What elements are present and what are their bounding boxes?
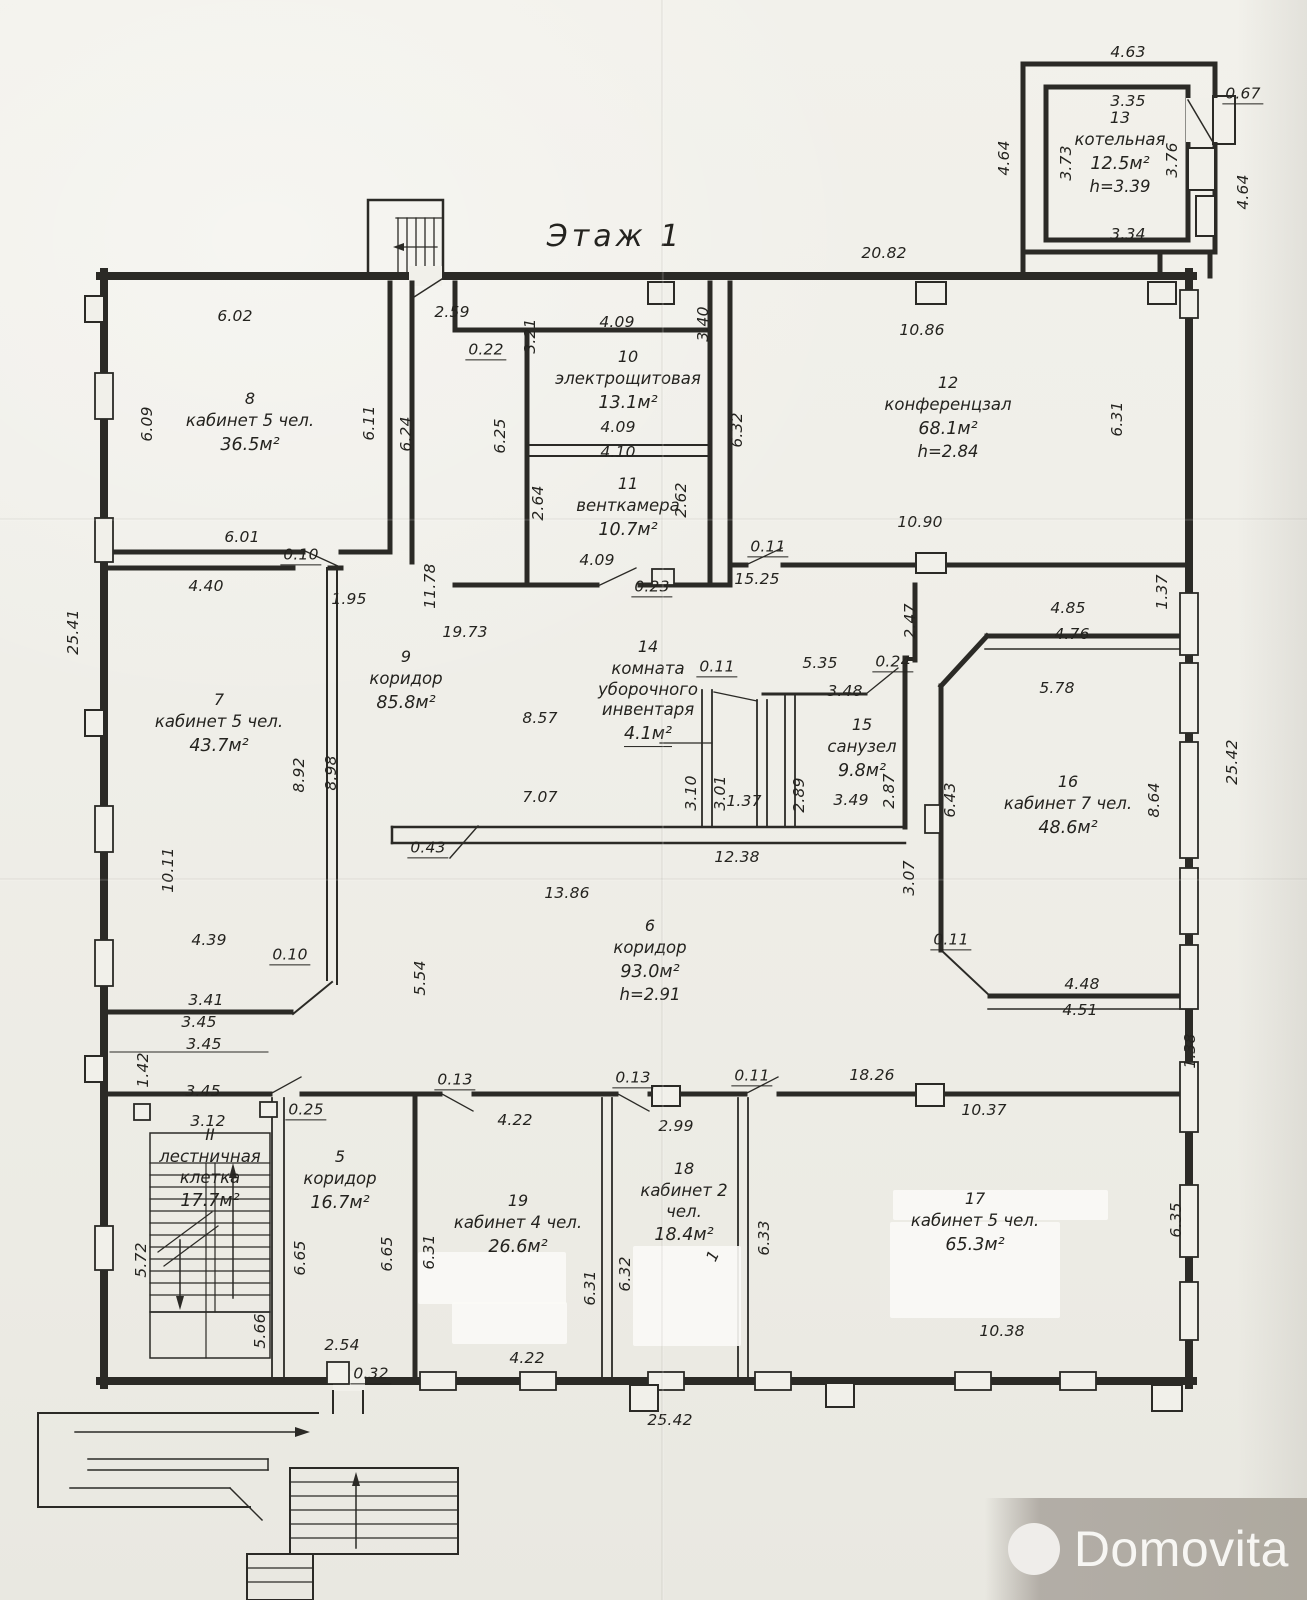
dimension-label: 0.10: [280, 546, 321, 565]
dimension-label: 6.35: [1168, 1202, 1184, 1237]
dimension-label: 2.89: [791, 777, 807, 812]
dimension-label: 13.86: [544, 885, 589, 901]
dimension-label: 4.76: [1054, 626, 1089, 642]
dimension-label: 4.09: [600, 419, 635, 435]
dimension-label: 0.11: [930, 931, 971, 950]
room-name: лестничная клетка: [154, 1147, 266, 1188]
dimension-label: 25.42: [647, 1412, 692, 1428]
room-area: 10.7м²: [598, 520, 657, 540]
dimension-label: 0.13: [434, 1071, 475, 1090]
dimension-label: 4.64: [996, 140, 1012, 175]
dimension-label: 10.90: [897, 514, 942, 530]
room-name: коридор: [613, 938, 686, 959]
dimension-label: 0.25: [285, 1101, 326, 1120]
room-number: 19: [508, 1191, 528, 1210]
dimension-label: 6.25: [492, 418, 508, 453]
dimension-label: 1.42: [135, 1052, 151, 1087]
dimension-label: 2.47: [902, 603, 918, 638]
dimension-label: 5.78: [1039, 680, 1074, 696]
room-number: 18: [674, 1159, 694, 1178]
room-19-label: 19 кабинет 4 чел. 26.6м²: [438, 1191, 598, 1257]
room-18-label: 18 кабинет 2 чел. 18.4м²: [636, 1159, 732, 1245]
dimension-label: 2.54: [324, 1337, 359, 1353]
dimension-label: 8.64: [1146, 782, 1162, 817]
dimension-label: 1.37: [726, 793, 761, 809]
dimension-label: 3.45: [185, 1083, 220, 1099]
left-wall-windows: [85, 296, 113, 1270]
dimension-label: 25.41: [65, 609, 81, 654]
room-name: коридор: [303, 1169, 376, 1190]
brand-dot-icon: [1008, 1523, 1060, 1575]
room-9-label: 9 коридор 85.8м²: [341, 647, 471, 713]
dimension-label: 19.73: [442, 624, 487, 640]
dimension-label: 8.57: [522, 710, 557, 726]
dimension-label: 10.37: [961, 1102, 1006, 1118]
room-name: комната уборочного инвентаря: [590, 659, 706, 721]
room-number: 9: [401, 647, 411, 666]
dimension-label: 3.35: [1110, 93, 1145, 109]
dimension-label: 0.10: [269, 946, 310, 965]
dimension-label: 0.67: [1222, 85, 1263, 104]
dimension-label: 4.51: [1062, 1002, 1097, 1018]
dimension-label: 3.49: [833, 792, 868, 808]
dimension-label: 6.65: [379, 1236, 395, 1271]
room-area: 16.7м²: [310, 1193, 369, 1213]
dimension-label: 8.92: [291, 757, 307, 792]
floor-plan-page: Этаж 1 8 кабинет 5 чел. 36.5м² 7 кабинет…: [0, 0, 1307, 1600]
dimension-label: 8.98: [323, 755, 339, 790]
bottom-wall-windows: [327, 1362, 1182, 1411]
room-6-label: 6 коридор 93.0м² h=2.91: [585, 916, 715, 1004]
room-height: h=2.91: [619, 985, 680, 1004]
room-name: коридор: [369, 669, 442, 690]
dimension-label: 1.37: [1154, 574, 1170, 609]
dimension-label: 3.12: [190, 1113, 225, 1129]
dimension-label: 11.78: [422, 563, 438, 608]
room-17-label: 17 кабинет 5 чел. 65.3м²: [890, 1189, 1060, 1255]
dimension-label: 2.64: [530, 485, 546, 520]
dimension-label: 6.32: [617, 1256, 633, 1291]
room-number: 13: [1110, 108, 1130, 127]
room-name: конференцзал: [884, 395, 1011, 416]
dimension-label: 3.48: [827, 683, 862, 699]
dimension-label: 4.09: [599, 314, 634, 330]
room-name: электрощитовая: [555, 369, 701, 390]
room-name: кабинет 5 чел.: [186, 411, 314, 432]
dimension-label: 6.65: [292, 1240, 308, 1275]
dimension-label: 4.85: [1050, 600, 1085, 616]
dimension-label: 6.33: [756, 1220, 772, 1255]
dimension-label: 3.40: [695, 306, 711, 341]
dimension-label: 7.07: [522, 789, 557, 805]
dimension-label: 6.01: [224, 529, 259, 545]
whiteout-patch: [633, 1246, 741, 1346]
entrance-vestibule: [368, 200, 445, 299]
room-number: 17: [965, 1189, 985, 1208]
dimension-label: 3.45: [181, 1014, 216, 1030]
room-number: 11: [618, 474, 638, 493]
room-area: 43.7м²: [189, 736, 248, 756]
whiteout-patch: [452, 1302, 567, 1344]
room-number: 8: [245, 389, 255, 408]
room-area: 93.0м²: [620, 962, 679, 982]
dimension-label: 6.32: [729, 412, 745, 447]
dimension-label: 2.62: [673, 482, 689, 517]
dimension-label: 6.09: [139, 406, 155, 441]
dimension-label: 0.23: [631, 578, 672, 597]
room-number: 15: [852, 715, 872, 734]
dimension-label: 0.11: [696, 658, 737, 677]
dimension-label: 3.34: [1110, 226, 1145, 242]
room-number: 5: [335, 1147, 345, 1166]
dimension-label: 4.10: [600, 444, 635, 460]
dimension-label: 5.35: [802, 655, 837, 671]
dimension-label: 10.86: [899, 322, 944, 338]
dimension-label: 0.24: [872, 653, 913, 672]
dimension-label: 3.07: [901, 860, 917, 895]
dimension-label: 6.02: [217, 308, 252, 324]
room-height: h=2.84: [917, 442, 978, 461]
dimension-label: 1.38: [1182, 1033, 1198, 1068]
dimension-label: 15.25: [734, 571, 779, 587]
dimension-label: 5.66: [252, 1313, 268, 1348]
room-area: 65.3м²: [945, 1235, 1004, 1255]
dimension-label: 4.22: [509, 1350, 544, 1366]
room-name: венткамера: [576, 496, 680, 517]
dimension-label: 2.87: [881, 773, 897, 808]
dimension-label: 0.22: [465, 341, 506, 360]
dimension-label: 4.09: [579, 552, 614, 568]
dimension-label: 25.42: [1224, 739, 1240, 784]
room-name: кабинет 2 чел.: [636, 1181, 732, 1222]
dimension-label: 4.48: [1064, 976, 1099, 992]
room-15-label: 15 санузел 9.8м²: [802, 715, 922, 781]
dimension-label: 4.40: [188, 578, 223, 594]
corridor-band: [392, 826, 905, 858]
room-name: кабинет 7 чел.: [1004, 794, 1132, 815]
exterior-ramp-stairs: [38, 1391, 458, 1600]
dimension-label: 3.41: [188, 992, 223, 1008]
dimension-label: 6.31: [1109, 401, 1125, 436]
dimension-label: 4.63: [1110, 44, 1145, 60]
room-number: 7: [214, 690, 224, 709]
dimension-label: 3.10: [683, 775, 699, 810]
room-area: 13.1м²: [598, 393, 657, 413]
room-8-label: 8 кабинет 5 чел. 36.5м²: [170, 389, 330, 455]
dimension-label: 4.22: [497, 1112, 532, 1128]
room-name: кабинет 5 чел.: [911, 1211, 1039, 1232]
dimension-label: 6.24: [398, 416, 414, 451]
room-area: 48.6м²: [1038, 818, 1097, 838]
dimension-label: 3.73: [1058, 145, 1074, 180]
dimension-label: 4.39: [191, 932, 226, 948]
room-number: 14: [638, 637, 658, 656]
room-area: 26.6м²: [488, 1237, 547, 1257]
room-14-label: 14 комната уборочного инвентаря 4.1м²: [590, 637, 706, 747]
dimension-label: 1.95: [331, 591, 366, 607]
stairwell-label: II лестничная клетка 17.7м²: [154, 1125, 266, 1211]
room-area: 18.4м²: [654, 1225, 713, 1245]
room-area: 9.8м²: [838, 761, 886, 781]
room-10-label: 10 электрощитовая 13.1м²: [538, 347, 718, 413]
dimension-label: 5.54: [412, 960, 428, 995]
room-number: 12: [938, 373, 958, 392]
room-area: 4.1м²: [624, 724, 672, 747]
dimension-label: 0.11: [731, 1067, 772, 1086]
dimension-label: 2.99: [658, 1118, 693, 1134]
room-name: кабинет 4 чел.: [454, 1213, 582, 1234]
dimension-label: 6.43: [942, 782, 958, 817]
page-title: Этаж 1: [547, 222, 683, 252]
room-area: 36.5м²: [220, 435, 279, 455]
dimension-label: 10.38: [979, 1323, 1024, 1339]
dimension-label: 3.21: [522, 318, 538, 353]
room-name: кабинет 5 чел.: [155, 712, 283, 733]
room-name: санузел: [827, 737, 896, 758]
room-area: 85.8м²: [376, 693, 435, 713]
room-12-label: 12 конференцзал 68.1м² h=2.84: [848, 373, 1048, 461]
dimension-label: 18.26: [849, 1067, 894, 1083]
room-16-label: 16 кабинет 7 чел. 48.6м²: [983, 772, 1153, 838]
dimension-label: 0.32: [350, 1365, 391, 1384]
dimension-label: 0.43: [407, 839, 448, 858]
dimension-label: 12.38: [714, 849, 759, 865]
room-number: 10: [618, 347, 638, 366]
dimension-label: 20.82: [861, 245, 906, 261]
dimension-label: 10.11: [160, 847, 176, 892]
dimension-label: 4.64: [1235, 174, 1251, 209]
room-name: котельная: [1075, 130, 1166, 151]
dimension-label: 0.13: [612, 1069, 653, 1088]
brand-name: Domovita: [1074, 1520, 1289, 1578]
whiteout-patch: [418, 1252, 566, 1304]
dimension-label: 0.11: [747, 538, 788, 557]
room-number: 16: [1058, 772, 1078, 791]
room-area: 17.7м²: [180, 1191, 239, 1211]
room-area: 12.5м²: [1090, 154, 1149, 174]
room-height: h=3.39: [1089, 177, 1150, 196]
dimension-label: 2.59: [434, 304, 469, 320]
dimension-label: 6.31: [421, 1234, 437, 1269]
room-5-label: 5 коридор 16.7м²: [285, 1147, 395, 1213]
dimension-label: 3.76: [1164, 142, 1180, 177]
room-number: 6: [645, 916, 655, 935]
watermark: Domovita: [985, 1498, 1307, 1600]
dimension-label: 5.72: [133, 1242, 149, 1277]
room-area: 68.1м²: [918, 419, 977, 439]
dimension-label: 6.31: [582, 1270, 598, 1305]
dimension-label: 3.45: [186, 1036, 221, 1052]
dimension-label: 6.11: [361, 405, 377, 440]
room-7-label: 7 кабинет 5 чел. 43.7м²: [139, 690, 299, 756]
